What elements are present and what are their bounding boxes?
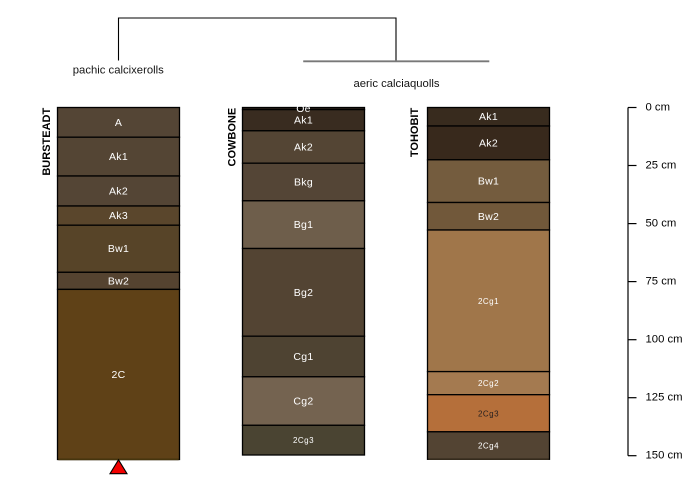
svg-text:A: A (115, 117, 122, 129)
svg-text:Bg1: Bg1 (294, 219, 314, 231)
svg-text:Bg2: Bg2 (294, 287, 314, 299)
svg-text:Ak2: Ak2 (109, 186, 128, 198)
svg-text:Bw1: Bw1 (108, 243, 129, 255)
svg-text:Ak3: Ak3 (109, 210, 128, 222)
svg-text:2C: 2C (111, 369, 125, 381)
svg-text:COWBONE: COWBONE (227, 108, 239, 167)
svg-text:75 cm: 75 cm (646, 276, 677, 288)
svg-text:2Cg3: 2Cg3 (293, 436, 314, 445)
svg-text:Oe: Oe (296, 103, 311, 115)
svg-text:150 cm: 150 cm (646, 450, 683, 462)
svg-text:2Cg1: 2Cg1 (478, 297, 499, 306)
svg-text:aeric calciaquolls: aeric calciaquolls (353, 78, 439, 90)
svg-text:0 cm: 0 cm (646, 102, 670, 114)
svg-text:100 cm: 100 cm (646, 334, 683, 346)
svg-text:Ak1: Ak1 (109, 151, 128, 163)
svg-text:Ak2: Ak2 (479, 137, 498, 149)
svg-text:pachic calcixerolls: pachic calcixerolls (73, 65, 164, 77)
svg-text:25 cm: 25 cm (646, 160, 677, 172)
svg-text:Cg2: Cg2 (293, 396, 313, 408)
svg-text:2Cg4: 2Cg4 (478, 442, 499, 451)
svg-text:Cg1: Cg1 (293, 351, 313, 363)
svg-text:Ak2: Ak2 (294, 142, 313, 154)
svg-text:125 cm: 125 cm (646, 392, 683, 404)
svg-text:Bw2: Bw2 (108, 275, 129, 287)
svg-text:Bkg: Bkg (294, 177, 313, 189)
svg-text:BURSTEADT: BURSTEADT (41, 108, 53, 176)
svg-text:Ak1: Ak1 (294, 115, 313, 127)
svg-text:Ak1: Ak1 (479, 111, 498, 123)
svg-text:Bw1: Bw1 (478, 176, 499, 188)
svg-text:TOHOBIT: TOHOBIT (409, 108, 421, 158)
svg-text:2Cg3: 2Cg3 (478, 409, 499, 418)
svg-text:Bw2: Bw2 (478, 211, 499, 223)
svg-text:50 cm: 50 cm (646, 218, 677, 230)
svg-text:2Cg2: 2Cg2 (478, 379, 499, 388)
